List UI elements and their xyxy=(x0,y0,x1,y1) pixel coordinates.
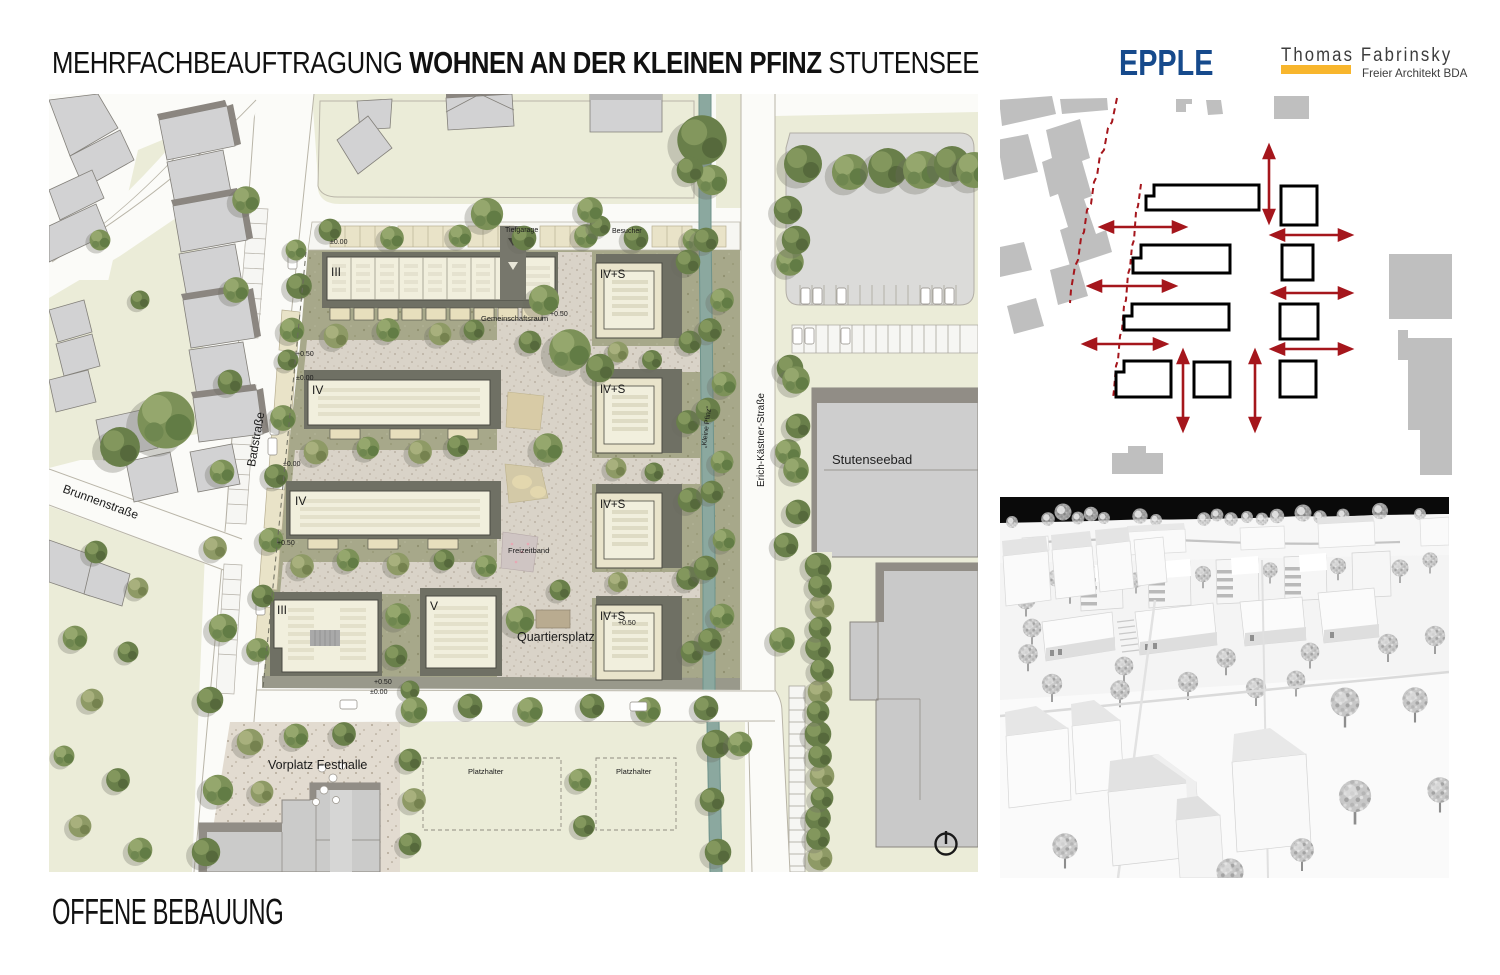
svg-text:+0.50: +0.50 xyxy=(374,679,392,686)
svg-text:+0.50: +0.50 xyxy=(550,311,568,318)
svg-text:+0.50: +0.50 xyxy=(296,351,314,358)
svg-text:IV+S: IV+S xyxy=(600,269,626,281)
svg-text:±0.00: ±0.00 xyxy=(370,689,388,696)
svg-text:III: III xyxy=(331,265,341,279)
svg-text:Vorplatz Festhalle: Vorplatz Festhalle xyxy=(268,758,367,772)
svg-text:Platzhalter: Platzhalter xyxy=(468,767,504,776)
svg-text:Freizeitband: Freizeitband xyxy=(508,546,549,555)
svg-text:IV: IV xyxy=(312,383,323,397)
svg-text:Gemeinschaftsraum: Gemeinschaftsraum xyxy=(481,314,548,323)
svg-text:Tiefgarage: Tiefgarage xyxy=(505,227,538,234)
svg-text:Erich-Kästner-Straße: Erich-Kästner-Straße xyxy=(756,393,767,487)
svg-text:IV+S: IV+S xyxy=(600,499,626,511)
svg-text:Quartiersplatz: Quartiersplatz xyxy=(517,630,595,644)
svg-text:Stutenseebad: Stutenseebad xyxy=(832,452,912,467)
svg-text:Besucher: Besucher xyxy=(612,228,642,235)
svg-text:+0.50: +0.50 xyxy=(618,620,636,627)
svg-text:+0.50: +0.50 xyxy=(277,540,295,547)
svg-text:IV+S: IV+S xyxy=(600,384,626,396)
svg-text:V: V xyxy=(430,599,438,613)
svg-text:IV: IV xyxy=(295,494,306,508)
svg-text:Platzhalter: Platzhalter xyxy=(616,767,652,776)
svg-text:±0.00: ±0.00 xyxy=(296,375,314,382)
svg-text:±0.00: ±0.00 xyxy=(330,239,348,246)
svg-text:±0.00: ±0.00 xyxy=(283,461,301,468)
svg-text:III: III xyxy=(277,603,287,617)
